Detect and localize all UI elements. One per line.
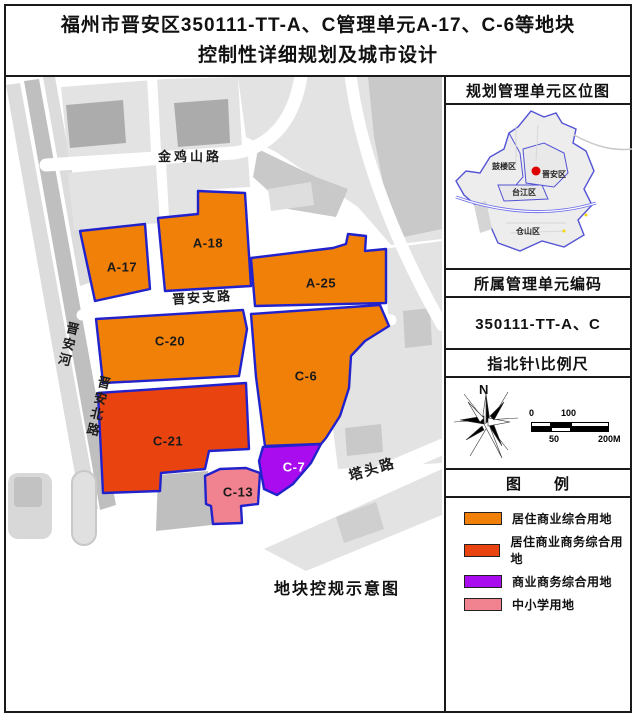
legend-swatch-commercial-business [464, 575, 502, 588]
location-map-title: 规划管理单元区位图 [446, 77, 630, 105]
unit-code-value: 350111-TT-A、C [446, 298, 630, 350]
city-outline [456, 111, 632, 251]
district-label-taijiang: 台江区 [512, 187, 536, 197]
scale-bar [531, 422, 609, 432]
legend-item: 商业商务综合用地 [464, 573, 630, 590]
legend-label: 居住商业商务综合用地 [510, 533, 630, 567]
legend-swatch-residential-commercial [464, 512, 502, 525]
district-label-gulou: 鼓楼区 [492, 161, 516, 171]
legend-label: 中小学用地 [512, 596, 575, 613]
title-line-1: 福州市晋安区350111-TT-A、C管理单元A-17、C-6等地块 [61, 11, 575, 40]
parcel-label-c13: C-13 [223, 485, 253, 500]
site-marker-dot [532, 167, 541, 176]
title-line-2: 控制性详细规划及城市设计 [198, 41, 438, 70]
scale-tick-50: 50 [549, 434, 559, 444]
road-label-jinjishan: 金鸡山路 [158, 146, 222, 165]
scale-tick-100: 100 [561, 408, 576, 418]
parcel-label-a18: A-18 [193, 236, 223, 251]
legend: 居住商业综合用地 居住商业商务综合用地 商业商务综合用地 中小学用地 [446, 498, 630, 711]
legend-title: 图 例 [446, 470, 630, 498]
scale-tick-0: 0 [529, 408, 534, 418]
compass-title: 指北针\比例尺 [446, 350, 630, 378]
compass-rose-icon [450, 384, 522, 464]
map-caption: 地块控规示意图 [274, 575, 400, 599]
sidebar: 规划管理单元区位图 [444, 77, 630, 711]
unit-code-title: 所属管理单元编码 [446, 270, 630, 298]
title-block: 福州市晋安区350111-TT-A、C管理单元A-17、C-6等地块 控制性详细… [6, 6, 630, 77]
district-label-jinan: 晋安区 [542, 169, 566, 179]
legend-swatch-residential-commercial-business [464, 544, 500, 557]
parcel-label-c7: C-7 [283, 460, 305, 475]
parcel-label-a17: A-17 [107, 260, 137, 275]
parcel-map: 金鸡山路 晋安支路 晋安河 晋安北路 塔头路 A-17 A-18 A-25 C-… [6, 77, 444, 711]
parcel-label-c6: C-6 [295, 369, 317, 384]
parcel-label-c21: C-21 [153, 434, 183, 449]
location-map-canvas: 鼓楼区 晋安区 台江区 仓山区 [446, 105, 632, 268]
location-map: 鼓楼区 晋安区 台江区 仓山区 [446, 105, 630, 270]
parcel-label-c20: C-20 [155, 334, 185, 349]
district-label-cangshan: 仓山区 [515, 226, 540, 236]
sheet-frame: 福州市晋安区350111-TT-A、C管理单元A-17、C-6等地块 控制性详细… [4, 4, 632, 713]
map-parcels [80, 191, 389, 524]
parcel-label-a25: A-25 [306, 276, 336, 291]
legend-item: 居住商业商务综合用地 [464, 533, 630, 567]
legend-label: 商业商务综合用地 [512, 573, 612, 590]
scale-tick-200: 200M [598, 434, 621, 444]
legend-item: 居住商业综合用地 [464, 510, 630, 527]
legend-swatch-school [464, 598, 502, 611]
parcel-map-canvas [6, 77, 444, 711]
legend-label: 居住商业综合用地 [512, 510, 612, 527]
compass-section: N [446, 378, 630, 470]
parcel-a25 [251, 234, 386, 306]
legend-item: 中小学用地 [464, 596, 630, 613]
planning-sheet: 福州市晋安区350111-TT-A、C管理单元A-17、C-6等地块 控制性详细… [0, 0, 640, 721]
content: 金鸡山路 晋安支路 晋安河 晋安北路 塔头路 A-17 A-18 A-25 C-… [6, 77, 630, 711]
